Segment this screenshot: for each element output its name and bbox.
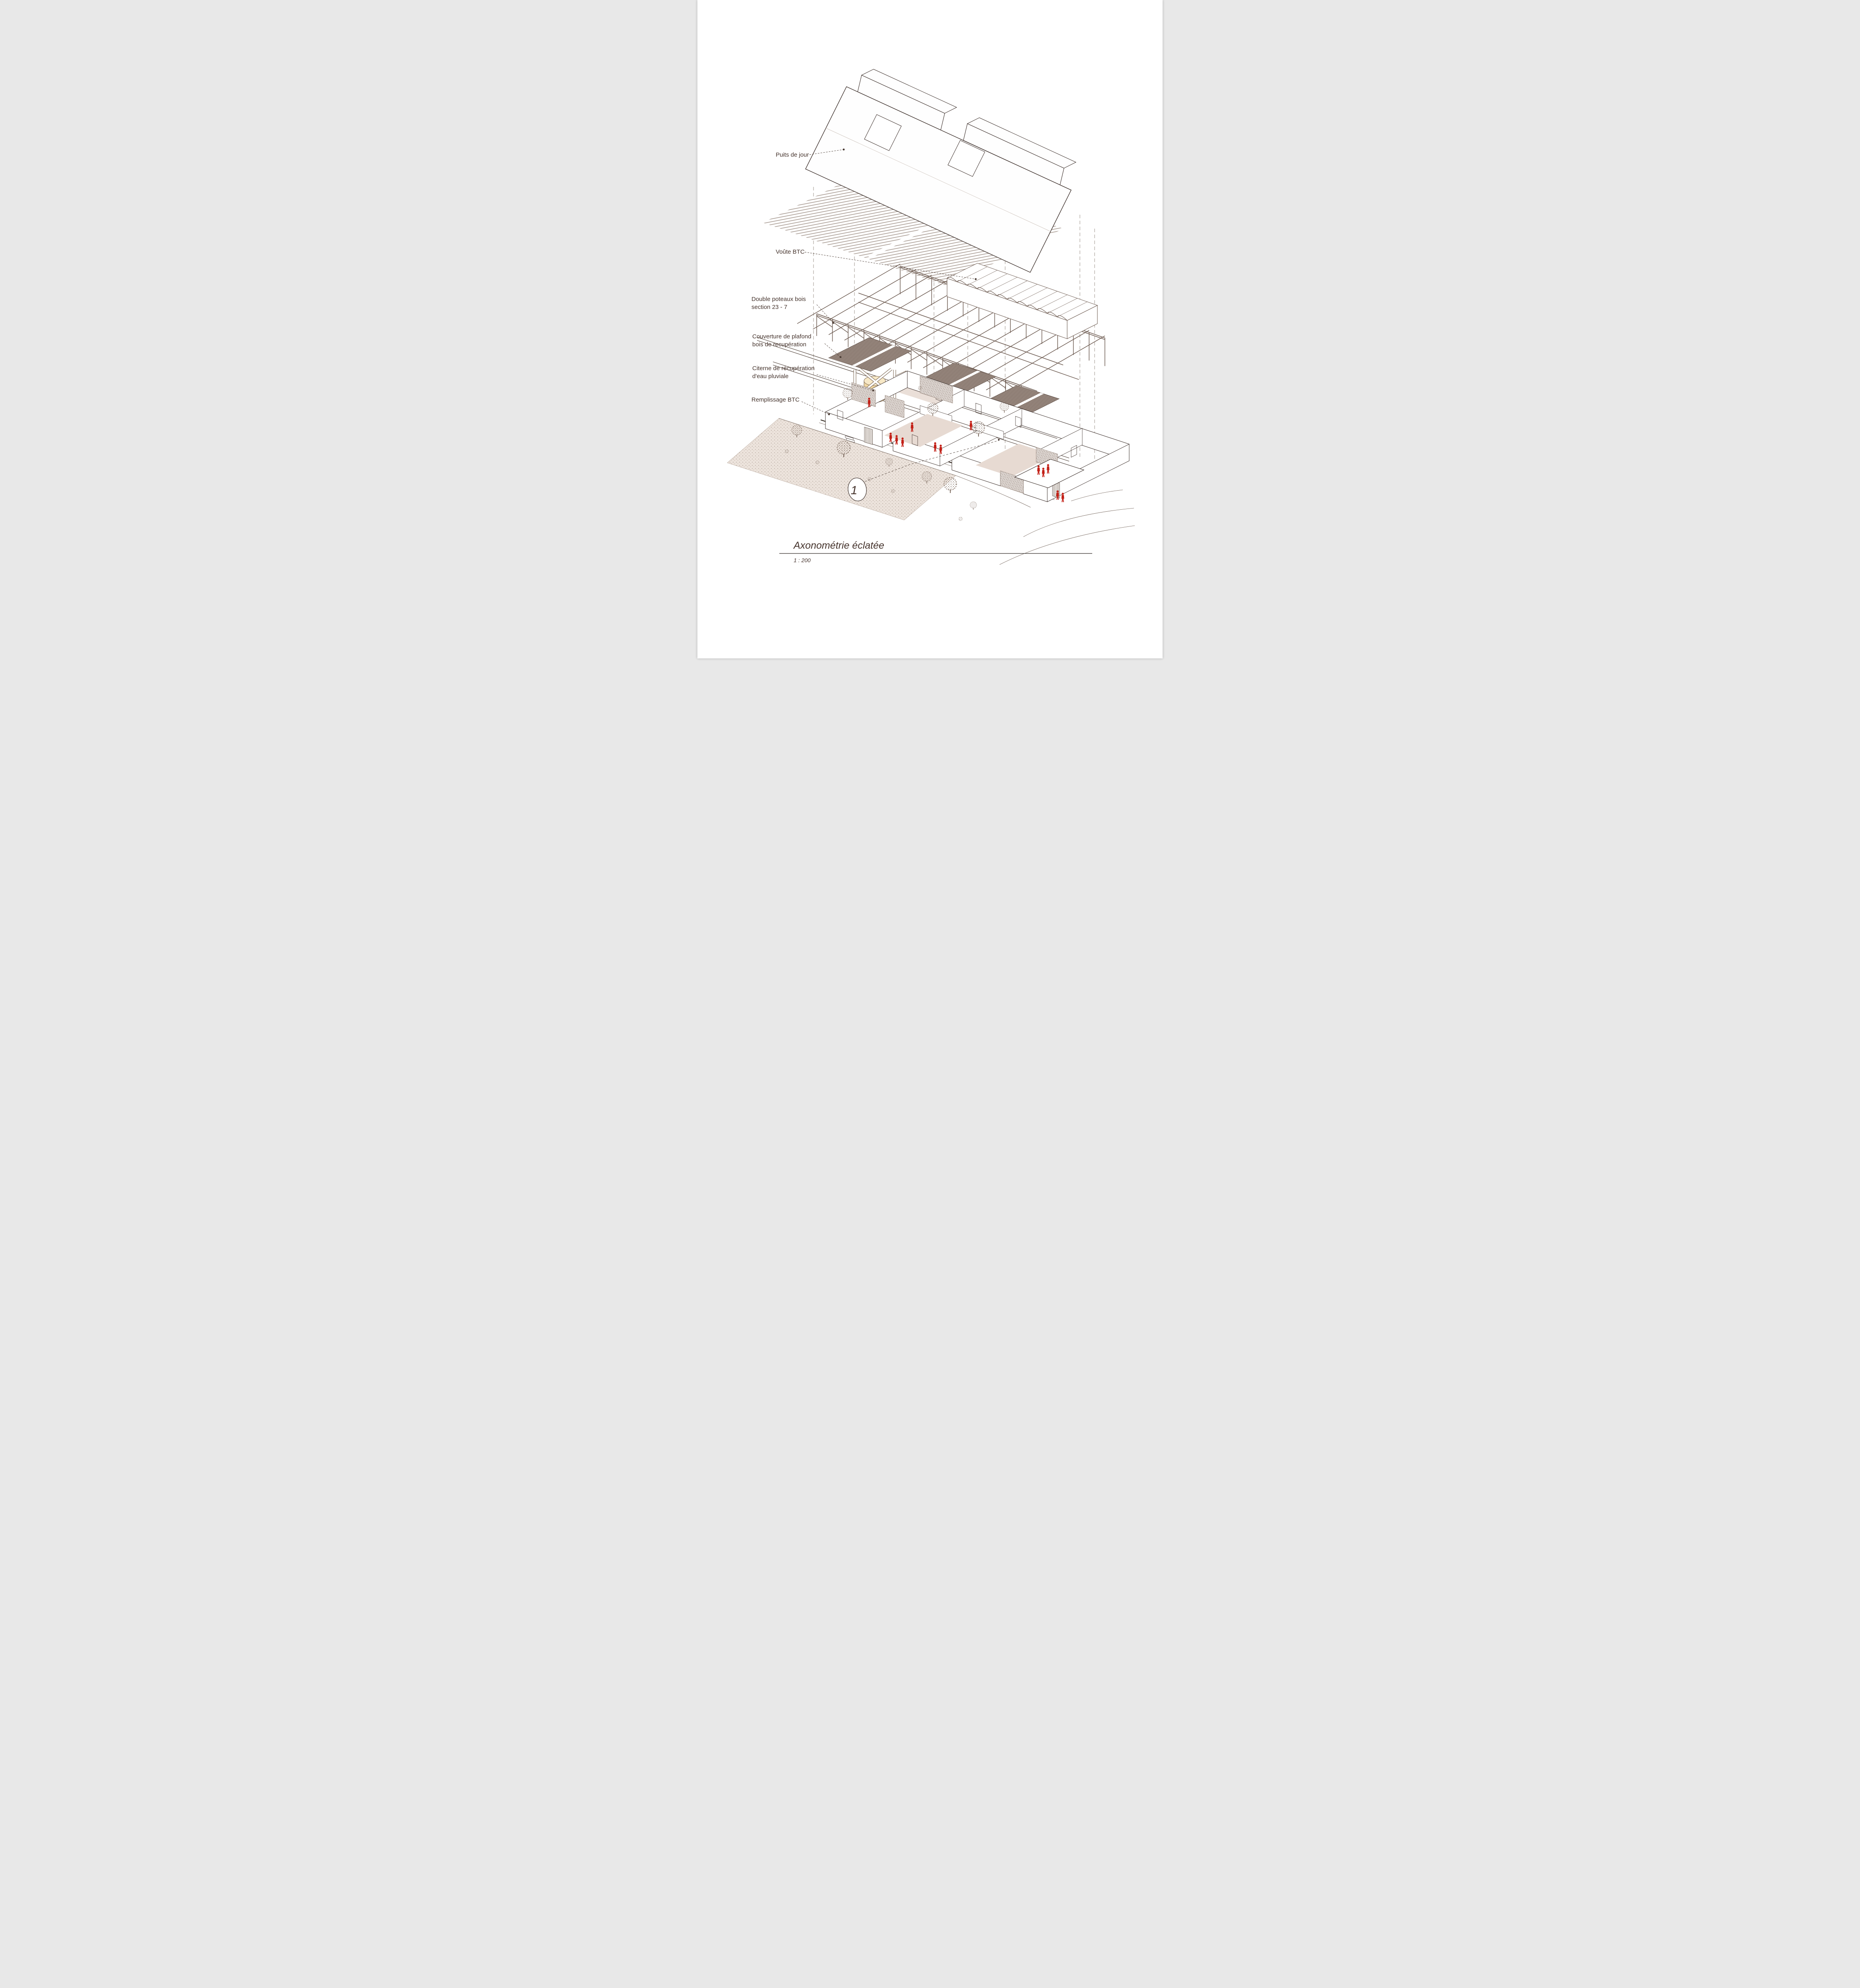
exploded-axonometric-drawing: Puits de jour Voûte BTC Double poteaux b… xyxy=(697,0,1163,658)
callout-puits-de-jour: Puits de jour xyxy=(776,151,809,158)
callout-double-poteaux: Double poteaux bois section 23 - 7 xyxy=(751,296,808,311)
callout-couverture: Couverture de plafond bois de recupérati… xyxy=(752,333,813,348)
callout-citerne: Citerne de récupération d'eau pluviale xyxy=(752,365,816,380)
callout-voute-btc: Voûte BTC xyxy=(776,248,805,255)
title-block: Axonométrie éclatée 1 : 200 xyxy=(779,540,1092,563)
marker-number: 1 xyxy=(851,484,858,497)
drawing-title: Axonométrie éclatée xyxy=(793,540,884,551)
drawing-scale: 1 : 200 xyxy=(794,557,811,563)
drawing-sheet: Puits de jour Voûte BTC Double poteaux b… xyxy=(697,0,1163,658)
callout-remplissage: Remplissage BTC xyxy=(751,396,800,403)
btc-vault-layer xyxy=(947,263,1097,339)
